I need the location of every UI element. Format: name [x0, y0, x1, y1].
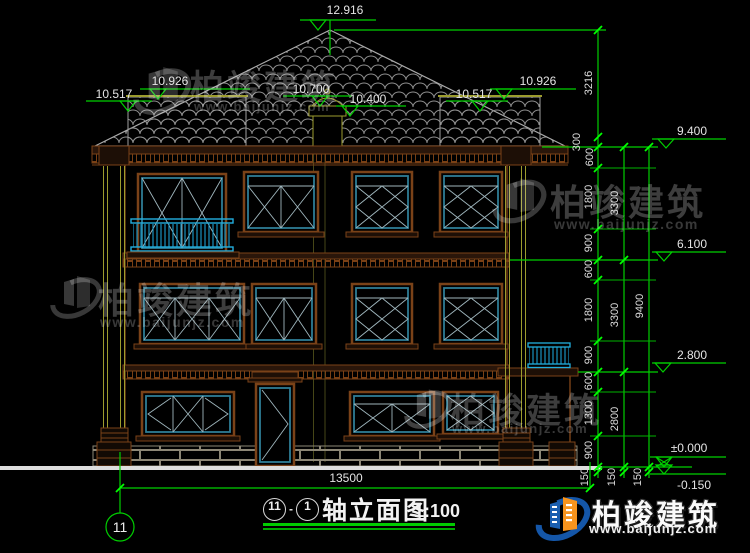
- elevation-label-eave: 9.400: [662, 124, 722, 138]
- window: [434, 284, 508, 349]
- window: [238, 172, 324, 237]
- window: [346, 284, 418, 349]
- cad-canvas: 12.916 10.517 10.926 10.700 10.400 10.51…: [0, 0, 750, 553]
- elevation-label-second-floor: 2.800: [662, 348, 722, 362]
- dim-label: 2800: [609, 397, 621, 441]
- eave-cornice: [92, 146, 568, 165]
- dim-label: 3300: [609, 293, 621, 337]
- title-axis-start: 11: [263, 498, 286, 521]
- title-underline: [263, 523, 455, 526]
- dim-label: 600: [584, 135, 596, 179]
- dim-label: 3216: [583, 61, 595, 105]
- dim-label: 300: [571, 120, 583, 164]
- dim-label: 600: [583, 247, 595, 291]
- dim-label: 150: [579, 455, 591, 499]
- watermark-url: www.baijunjz.com: [554, 216, 699, 232]
- elevation-label-ridge-right: 10.400: [338, 92, 398, 106]
- entry-door: [248, 372, 302, 466]
- dim-label: 1800: [583, 288, 595, 332]
- elevation-label-left-outer: 10.517: [84, 87, 144, 101]
- floor-band-2800: [123, 365, 509, 379]
- drawing-scale: 1:100: [414, 501, 460, 522]
- dim-label: 9400: [634, 284, 646, 328]
- balcony-third-floor: [127, 219, 239, 258]
- dim-label-overall-width: 13500: [314, 471, 378, 485]
- elevation-label-peak: 12.916: [315, 3, 375, 17]
- window: [136, 392, 240, 441]
- window: [346, 172, 418, 237]
- watermark-url: www.baijunjz.com: [100, 314, 245, 330]
- elevation-label-third-floor: 6.100: [662, 237, 722, 251]
- title-axis-end: 1: [296, 498, 319, 521]
- ground-line: [0, 466, 602, 470]
- elevation-label-ground: ±0.000: [656, 441, 722, 455]
- elevation-label-right-inner: 10.926: [508, 74, 568, 88]
- title-underline-thin: [263, 528, 455, 530]
- elevation-label-site: -0.150: [662, 478, 726, 492]
- watermark-url: www.baijunjz.com: [194, 99, 330, 114]
- watermark-icon: [46, 272, 105, 324]
- brand-logo-url: www.baijunjz.com: [589, 521, 717, 536]
- axis-bubble-label: 11: [106, 519, 134, 535]
- brand-logo-icon: [532, 492, 593, 546]
- window: [246, 284, 322, 349]
- elevation-label-right-outer: 10.517: [444, 87, 504, 101]
- watermark-url: www.baijunjz.com: [452, 421, 588, 436]
- window: [434, 172, 508, 237]
